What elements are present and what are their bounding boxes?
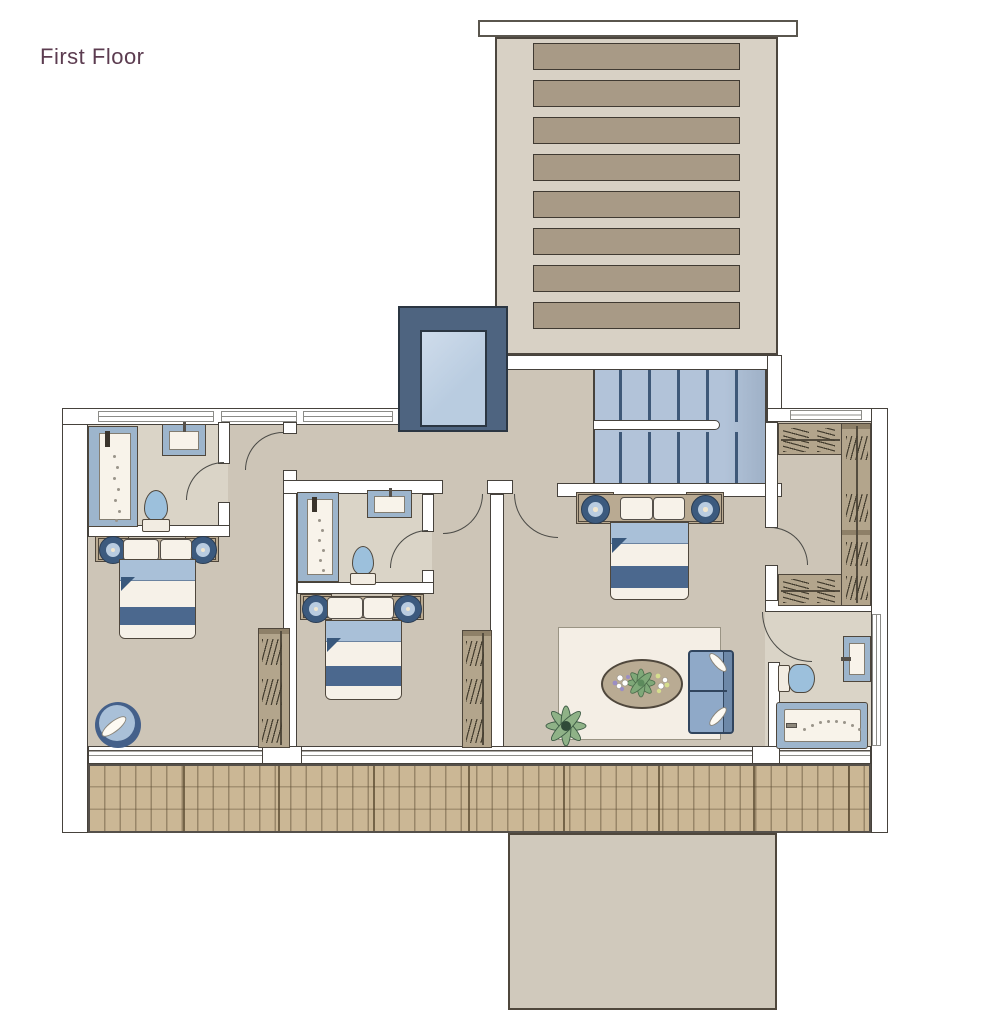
pillow [327, 597, 363, 619]
pergola-slat [533, 43, 740, 70]
stair-tread [648, 370, 651, 422]
toilet [778, 664, 816, 694]
sink [162, 424, 206, 456]
balcony-deck [88, 764, 871, 833]
bedside-lamp [394, 595, 422, 623]
bed [610, 522, 689, 600]
stair-tread [648, 432, 651, 487]
shower-head [105, 431, 110, 447]
flower-arrangement [603, 661, 679, 705]
bed [325, 620, 402, 700]
wall-step-right [767, 355, 782, 415]
window [790, 410, 862, 420]
floor-plan-page: First Floor [0, 0, 993, 1024]
wall-bath1-right-a [218, 422, 230, 464]
wall-left-suite-top [283, 422, 297, 434]
bathtub [776, 702, 868, 749]
stair-handrail [593, 420, 720, 430]
stair-tread [619, 432, 622, 487]
page-title: First Floor [40, 44, 145, 70]
bedside-lamp [581, 495, 610, 524]
stair-tread [735, 432, 738, 487]
wall-top-middle [505, 355, 782, 370]
wall-closet-left-a [765, 422, 778, 528]
shower-head [312, 497, 317, 512]
round-chair [95, 702, 141, 748]
pergola-slat [533, 265, 740, 292]
pillow [620, 497, 653, 520]
lower-roof-annex [508, 833, 777, 1010]
wall-bottom-pillar [262, 746, 302, 764]
bedside-lamp [691, 495, 720, 524]
wardrobe [778, 423, 843, 455]
upper-hall-floor [505, 368, 598, 428]
pergola-slat [533, 154, 740, 181]
pergola-slat [533, 302, 740, 329]
pergola-ridge [478, 20, 798, 37]
pergola-slat [533, 80, 740, 107]
stair-tread [735, 370, 738, 422]
wall-central [490, 494, 504, 748]
elevator-shaft [398, 306, 508, 432]
bedside-lamp [302, 595, 330, 623]
wall-hall-pillar [487, 480, 513, 494]
pillow [653, 497, 685, 520]
stair-tread [706, 370, 709, 422]
shower [88, 426, 138, 527]
shower [297, 492, 339, 582]
wardrobe [778, 574, 843, 606]
wall-bottom-pillar [752, 746, 780, 764]
stair-tread [677, 370, 680, 422]
sink [843, 636, 871, 682]
potted-plant [543, 703, 589, 749]
pillow [363, 597, 394, 619]
elevator-car [420, 330, 487, 427]
coffee-table [601, 659, 683, 709]
wall-left [62, 408, 88, 833]
pergola-slat [533, 117, 740, 144]
pergola-slat [533, 228, 740, 255]
window [872, 614, 881, 746]
pillow [123, 539, 159, 561]
pillow [160, 539, 192, 561]
pergola-slat [533, 191, 740, 218]
bed [119, 559, 196, 639]
stair-tread [677, 432, 680, 487]
toilet [350, 546, 376, 586]
stair-tread [619, 370, 622, 422]
sink [367, 490, 412, 518]
window [221, 411, 297, 422]
sofa [688, 650, 734, 734]
window [303, 411, 393, 422]
wall-bath2-right-a [422, 494, 434, 532]
stair-tread [706, 432, 709, 487]
wardrobe [841, 423, 871, 606]
toilet [142, 490, 170, 532]
window [98, 411, 214, 422]
wardrobe [462, 630, 492, 748]
bathtub-faucet [786, 723, 797, 728]
wardrobe [258, 628, 290, 748]
